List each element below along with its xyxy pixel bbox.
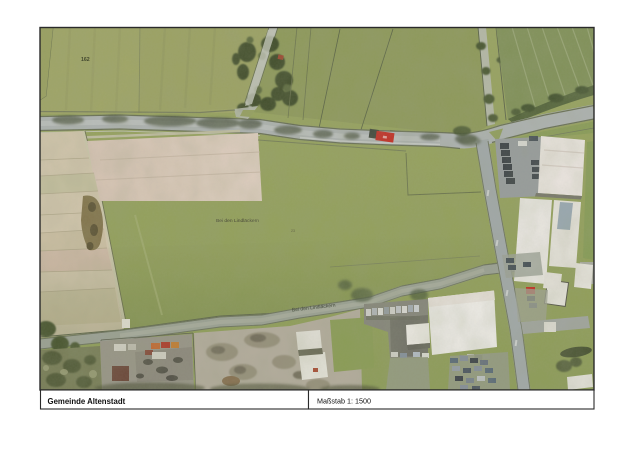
- svg-text:Gemeinde Altenstadt: Gemeinde Altenstadt: [48, 397, 126, 406]
- svg-text:Maßstab 1: 1500: Maßstab 1: 1500: [317, 397, 371, 406]
